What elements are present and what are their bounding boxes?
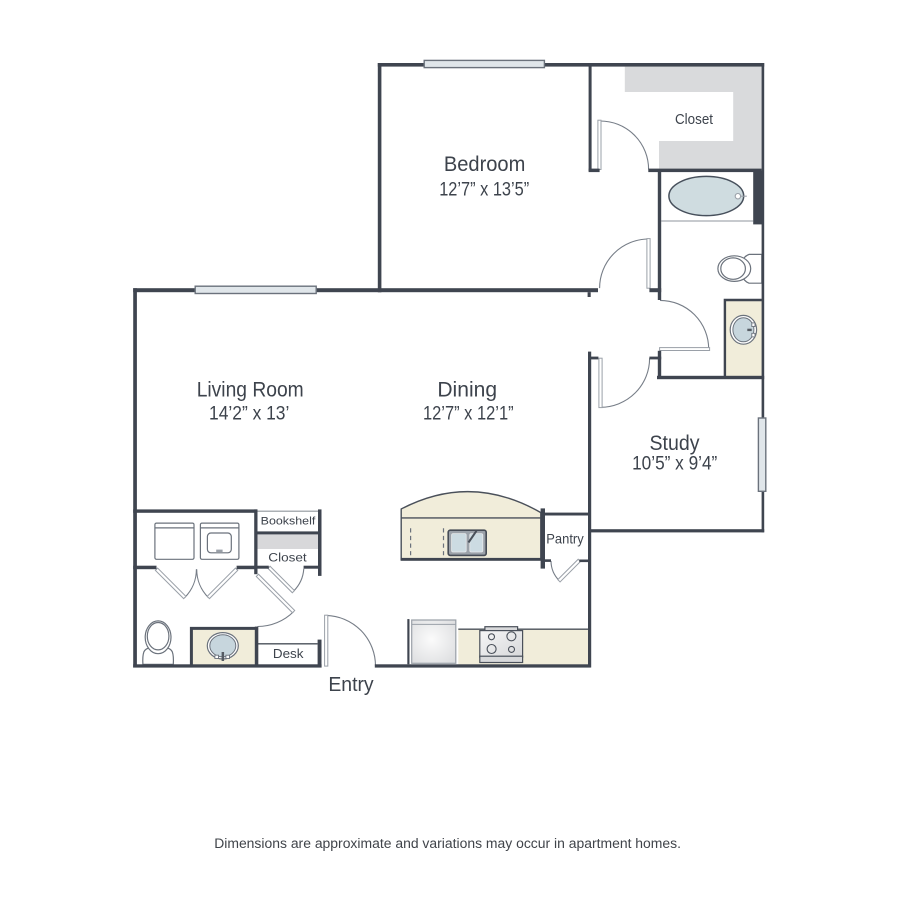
svg-text:Entry: Entry (328, 674, 373, 696)
svg-text:Bookshelf: Bookshelf (261, 516, 317, 528)
svg-text:Desk: Desk (273, 646, 304, 661)
svg-text:Dining: Dining (437, 378, 497, 402)
svg-text:12’7” x 13’5”: 12’7” x 13’5” (439, 178, 529, 200)
svg-text:Closet: Closet (675, 112, 713, 128)
svg-text:12’7” x 12’1”: 12’7” x 12’1” (423, 402, 514, 424)
svg-text:Bedroom: Bedroom (444, 152, 526, 176)
svg-text:Dimensions are approximate and: Dimensions are approximate and variation… (214, 836, 681, 852)
svg-text:Pantry: Pantry (546, 531, 583, 547)
svg-text:10’5” x 9’4”: 10’5” x 9’4” (632, 452, 717, 474)
svg-text:Closet: Closet (268, 550, 307, 564)
svg-text:14’2” x 13’: 14’2” x 13’ (209, 402, 289, 424)
svg-text:Living Room: Living Room (197, 378, 304, 402)
